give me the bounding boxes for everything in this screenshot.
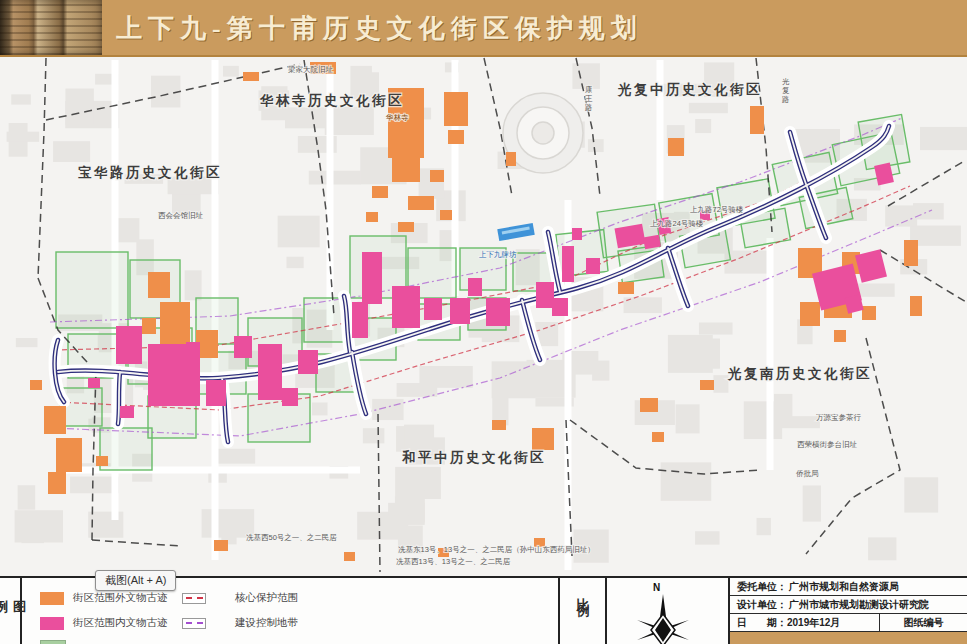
- legend-item: 街区范围内文物古迹: [40, 616, 168, 630]
- relic-outside-block: [148, 272, 170, 298]
- info-rows: 委托单位：广州市规划和自然资源局设计单位：广州市城市规划勘测设计研究院: [730, 578, 967, 614]
- site-name-label: 西会会馆旧址: [158, 211, 204, 220]
- relic-outside-block: [392, 158, 420, 182]
- info-value: 广州市城市规划勘测设计研究院: [789, 598, 929, 612]
- relic-outside-block: [44, 406, 66, 434]
- building: [309, 171, 361, 185]
- relic-outside-block: [366, 212, 378, 222]
- legend-panel: 图例: [0, 578, 22, 644]
- legend-item-label: 核心保护范围: [235, 591, 298, 605]
- relic-outside-block: [618, 282, 634, 294]
- legend-item-label: 街区范围内文物古迹: [73, 616, 168, 630]
- relic-outside-block: [652, 432, 664, 442]
- scale-panel: 比例: [560, 578, 607, 644]
- date-and-sheet-row: 日 期： 2019年12月 图纸编号: [730, 614, 967, 632]
- building: [286, 257, 303, 268]
- relic-outside-block: [48, 472, 66, 494]
- date-cell: 日 期： 2019年12月: [730, 614, 880, 631]
- site-name-label: 华林寺: [385, 113, 409, 122]
- relic-outside-block: [492, 420, 506, 430]
- relic-inside-block: [116, 326, 142, 364]
- relic-outside-block: [750, 106, 764, 134]
- info-label: 设计单位：: [737, 598, 787, 612]
- relic-outside-block: [444, 92, 468, 126]
- building: [885, 205, 917, 226]
- protection-block: [56, 252, 128, 328]
- legend-item-label: 街区范围外文物古迹: [73, 591, 168, 605]
- relic-outside-block: [700, 380, 714, 390]
- info-label: 委托单位：: [737, 580, 787, 594]
- building: [15, 510, 63, 542]
- district-name-label: 光复中历史文化街区: [617, 82, 762, 97]
- building: [11, 94, 31, 104]
- sheet-number-label: 图纸编号: [880, 614, 967, 631]
- site-name-label: 侨批局: [796, 469, 819, 478]
- building: [70, 477, 118, 494]
- legend-fill-items: 街区范围外文物古迹街区范围内文物古迹: [40, 591, 168, 630]
- building: [7, 132, 40, 142]
- screenshot-tooltip: 截图(Alt + A): [95, 570, 176, 591]
- site-name-label: 冼基西50号之一、之二民居: [246, 533, 337, 542]
- building: [713, 375, 728, 393]
- info-value: 广州市规划和自然资源局: [789, 580, 899, 594]
- relic-inside-block: [352, 302, 368, 338]
- scale-panel-label: 比例: [574, 587, 592, 644]
- relic-outside-block: [30, 380, 42, 390]
- table-accent-strip: [730, 632, 967, 644]
- compass: N: [607, 578, 730, 644]
- relic-outside-block: [160, 302, 190, 344]
- relic-outside-block: [800, 302, 820, 326]
- relic-outside-block: [448, 130, 464, 144]
- building: [419, 366, 472, 388]
- building: [588, 139, 604, 152]
- relic-inside-block: [392, 286, 420, 328]
- building: [668, 335, 713, 373]
- relic-outside-block: [668, 138, 684, 156]
- relic-inside-block: [120, 406, 134, 418]
- legend-item: 街区范围外文物古迹: [40, 591, 168, 605]
- legend-line-swatch: [182, 593, 206, 604]
- historic-street-photo: [0, 0, 102, 55]
- building: [803, 485, 821, 521]
- building: [920, 127, 967, 150]
- building: [363, 428, 385, 443]
- building: [18, 485, 36, 509]
- date-label: 日 期：: [737, 616, 787, 630]
- building: [868, 537, 896, 560]
- planning-map: 宝华路历史文化街区华林寺历史文化街区光复中历史文化街区光复南历史文化街区和平中历…: [0, 0, 967, 644]
- legend-item: 核心保护范围: [182, 591, 298, 605]
- relic-outside-block: [56, 438, 82, 472]
- protection-block: [248, 394, 310, 442]
- relic-inside-block: [206, 380, 226, 406]
- site-name-label: 上九路72号骑楼: [690, 205, 744, 214]
- info-row: 设计单位：广州市城市规划勘测设计研究院: [730, 596, 967, 614]
- relic-inside-block: [282, 388, 298, 406]
- building: [16, 338, 38, 347]
- site-name-label: 康王路: [585, 85, 593, 112]
- district-name-label: 宝华路历史文化街区: [78, 165, 222, 180]
- site-name-label: 万源宝参茶行: [816, 413, 862, 422]
- building: [699, 322, 733, 334]
- building: [213, 449, 256, 464]
- legend-item-label: 建设控制地带: [235, 616, 298, 630]
- relic-outside-block: [142, 318, 156, 334]
- plan-sheet: 宝华路历史文化街区华林寺历史文化街区光复中历史文化街区光复南历史文化街区和平中历…: [0, 0, 967, 644]
- relic-outside-block: [440, 210, 452, 220]
- relic-outside-block: [506, 152, 516, 166]
- relic-inside-block: [362, 252, 382, 304]
- relic-outside-block: [430, 170, 444, 182]
- relic-inside-block: [258, 344, 282, 400]
- page-title: 上下九-第十甫历史文化街区保护规划: [116, 10, 643, 45]
- site-name-label: 西荣横街参台旧址: [797, 440, 858, 449]
- relic-outside-block: [243, 72, 259, 81]
- site-name-label: 冼基西13号、13号之一、之二民居: [396, 557, 511, 566]
- building: [223, 66, 239, 77]
- legend-line-items: 核心保护范围建设控制地带: [182, 591, 298, 630]
- building: [913, 203, 944, 219]
- building: [695, 119, 711, 133]
- legend-item: 建设控制地带: [182, 616, 298, 630]
- legend-line-swatch: [182, 618, 206, 629]
- relic-outside-block: [214, 540, 228, 551]
- relic-inside-block: [450, 298, 470, 324]
- building: [676, 404, 700, 433]
- relic-outside-block: [910, 296, 922, 316]
- site-name-label: 上九路24号骑楼: [650, 219, 704, 228]
- relic-outside-block: [398, 222, 414, 232]
- relic-inside-block: [468, 278, 482, 296]
- date-value: 2019年12月: [787, 616, 840, 630]
- district-name-label: 华林寺历史文化街区: [259, 93, 404, 108]
- building: [689, 103, 728, 113]
- relic-inside-block: [486, 298, 510, 326]
- legend-fill-swatch: [40, 592, 64, 605]
- relic-inside-block: [552, 298, 568, 316]
- relic-inside-block: [424, 298, 442, 320]
- legend-partial-swatch: [40, 640, 66, 644]
- relic-inside-block: [88, 378, 100, 388]
- site-name-label: 光复路: [782, 77, 790, 104]
- relic-outside-block: [372, 186, 388, 198]
- relic-inside-block: [586, 258, 600, 274]
- relic-outside-block: [640, 398, 658, 412]
- title-block-table: 委托单位：广州市规划和自然资源局设计单位：广州市城市规划勘测设计研究院 日 期：…: [730, 578, 967, 644]
- relic-outside-block: [532, 428, 554, 450]
- relic-inside-block: [536, 282, 554, 308]
- building: [53, 141, 90, 162]
- building: [185, 270, 202, 300]
- building: [65, 89, 93, 125]
- relic-outside-block: [904, 240, 918, 266]
- compass-rose-icon: [625, 592, 701, 644]
- relic-inside-block: [572, 228, 582, 240]
- relic-outside-block: [344, 552, 355, 561]
- site-name-label: 上下九牌坊: [479, 250, 517, 259]
- info-row: 委托单位：广州市规划和自然资源局: [730, 578, 967, 596]
- building: [695, 531, 719, 544]
- relic-inside-block: [186, 342, 200, 376]
- district-name-label: 光复南历史文化街区: [727, 366, 872, 381]
- relic-inside-block: [562, 246, 574, 282]
- site-name-label: 梁家大院旧址: [288, 65, 334, 74]
- building: [371, 516, 408, 539]
- relic-outside-block: [862, 306, 876, 320]
- building: [372, 399, 403, 420]
- district-name-label: 和平中历史文化街区: [401, 449, 546, 465]
- relic-outside-block: [96, 456, 108, 466]
- building: [904, 477, 938, 512]
- relic-inside-block: [234, 336, 252, 358]
- building: [774, 394, 792, 426]
- relic-inside-block: [298, 350, 318, 374]
- legend-fill-swatch: [40, 617, 64, 630]
- site-name-label: 冼基东13号、13号之一、之二民居（孙中山东西药局旧址）: [398, 545, 595, 554]
- building: [312, 402, 328, 415]
- building: [278, 216, 320, 248]
- relic-outside-block: [834, 330, 846, 342]
- building: [757, 518, 771, 535]
- title-banner: 上下九-第十甫历史文化街区保护规划: [0, 0, 967, 57]
- relic-outside-block: [408, 196, 434, 210]
- building: [661, 462, 712, 500]
